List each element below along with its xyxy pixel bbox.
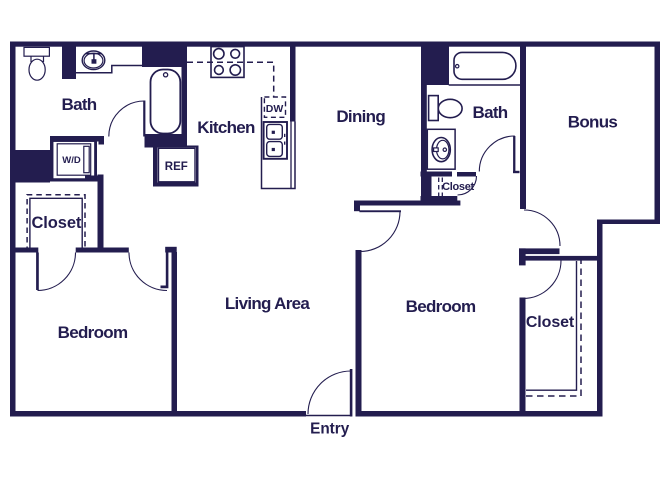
svg-text:W/D: W/D bbox=[62, 155, 81, 166]
svg-text:DW: DW bbox=[266, 103, 284, 115]
svg-text:Bedroom: Bedroom bbox=[406, 297, 476, 316]
svg-text:Living Area: Living Area bbox=[225, 294, 310, 313]
svg-text:REF: REF bbox=[165, 161, 188, 173]
svg-text:Bonus: Bonus bbox=[568, 113, 618, 132]
svg-text:Bath: Bath bbox=[62, 95, 97, 114]
svg-text:Closet: Closet bbox=[526, 314, 575, 331]
svg-text:Closet: Closet bbox=[31, 214, 81, 232]
svg-text:Entry: Entry bbox=[310, 421, 350, 438]
svg-text:Bedroom: Bedroom bbox=[58, 323, 128, 342]
svg-text:Bath: Bath bbox=[473, 103, 508, 122]
svg-text:Kitchen: Kitchen bbox=[197, 118, 255, 137]
svg-text:Dining: Dining bbox=[336, 107, 385, 126]
